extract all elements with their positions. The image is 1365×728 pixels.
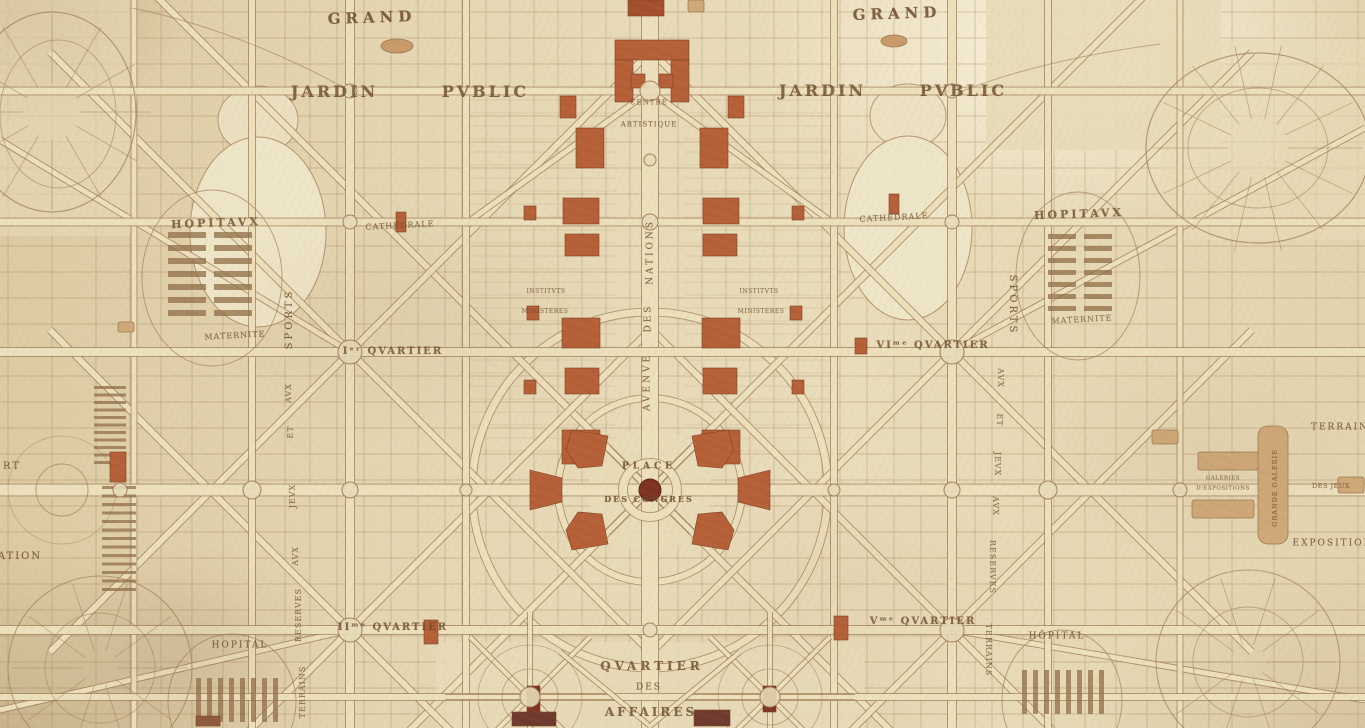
- label-place: PLACE: [622, 463, 676, 472]
- label-hopital-right: HÔPITAL: [1029, 633, 1086, 642]
- label-grand-right: GRAND: [852, 5, 941, 23]
- label-reserves-r: RESERVES: [988, 540, 996, 594]
- label-quartier-2: IIᵐᵉ QVARTIER: [338, 623, 448, 633]
- label-quartier-affaires: QVARTIER: [600, 660, 704, 672]
- label-exposition-right: EXPOSITION: [1293, 540, 1365, 549]
- label-grande-galerie: GRANDE GALERIE: [1272, 449, 1279, 527]
- label-sports-left: SPORTS: [285, 289, 295, 350]
- label-avx-r1: AVX: [996, 368, 1004, 388]
- label-jardin-public-left: JARDIN PVBLIC: [291, 84, 529, 100]
- label-sports-right: SPORTS: [1007, 275, 1017, 336]
- label-instituts-left: INSTITVTS: [526, 289, 565, 295]
- label-galeries: GALERIES: [1206, 476, 1240, 482]
- label-terrains-l: TERRAINS: [299, 666, 307, 719]
- label-quartier-6: VIᵐᵉ QVARTIER: [876, 341, 989, 351]
- label-affaires: AFFAIRES: [605, 706, 697, 718]
- label-des-congres: DES CONGRES: [604, 495, 694, 503]
- label-maternite-right: MATERNITE: [1051, 314, 1112, 325]
- label-et-l: ET: [287, 425, 295, 438]
- label-reserves-l: RESERVES: [295, 588, 303, 642]
- label-grand-left: GRAND: [327, 9, 416, 27]
- label-fragment-ation: ATION: [0, 552, 42, 562]
- label-cathedrale-left: CATHEDRALE: [365, 220, 434, 232]
- label-avenue: AVENVE: [644, 353, 653, 411]
- label-avx-r2: AVX: [991, 496, 999, 516]
- label-quartier-1: Iᵉʳ QVARTIER: [343, 347, 443, 357]
- label-centre: CENTRE: [630, 100, 668, 107]
- label-et-r: ET: [995, 413, 1003, 426]
- label-hopitaux-right: HOPITAVX: [1034, 207, 1124, 221]
- label-avx-l2: AVX: [292, 546, 300, 566]
- label-ministeres-right: MINISTERES: [738, 309, 785, 315]
- label-artistique: ARTISTIQUE: [621, 122, 678, 129]
- label-jevx-r: JEVX: [993, 452, 1001, 477]
- label-hopitaux-left: HOPITAVX: [171, 216, 261, 230]
- label-terrain: TERRAIN: [1311, 424, 1365, 433]
- city-plan-map: GRANDGRANDJARDIN PVBLICJARDIN PVBLICCENT…: [0, 0, 1365, 728]
- label-quartier-5: Vᵐᵉ QVARTIER: [870, 617, 977, 627]
- label-fragment-rt: RT: [3, 462, 21, 472]
- label-terrains-r: TERRAINS: [984, 624, 992, 677]
- label-jevx-l: JEVX: [289, 484, 297, 509]
- label-instituts-right: INSTITVTS: [739, 289, 778, 295]
- label-maternite-left: MATERNITE: [204, 330, 265, 341]
- label-des-nations: DES: [645, 304, 654, 333]
- label-avx-l1: AVX: [285, 383, 293, 403]
- label-hopital-left: HOPITAL: [212, 642, 269, 651]
- label-nations: NATIONS: [647, 219, 656, 285]
- label-d-expositions: D'EXPOSITIONS: [1196, 486, 1249, 492]
- label-des-affaires: DES: [636, 684, 662, 693]
- label-ministeres-left: MINISTERES: [522, 309, 569, 315]
- label-cathedrale-right: CATHEDRALE: [859, 212, 928, 224]
- label-des-jeux: DES JEUX: [1312, 483, 1350, 490]
- map-labels: GRANDGRANDJARDIN PVBLICJARDIN PVBLICCENT…: [0, 0, 1365, 728]
- label-jardin-public-right: JARDIN PVBLIC: [779, 83, 1007, 99]
